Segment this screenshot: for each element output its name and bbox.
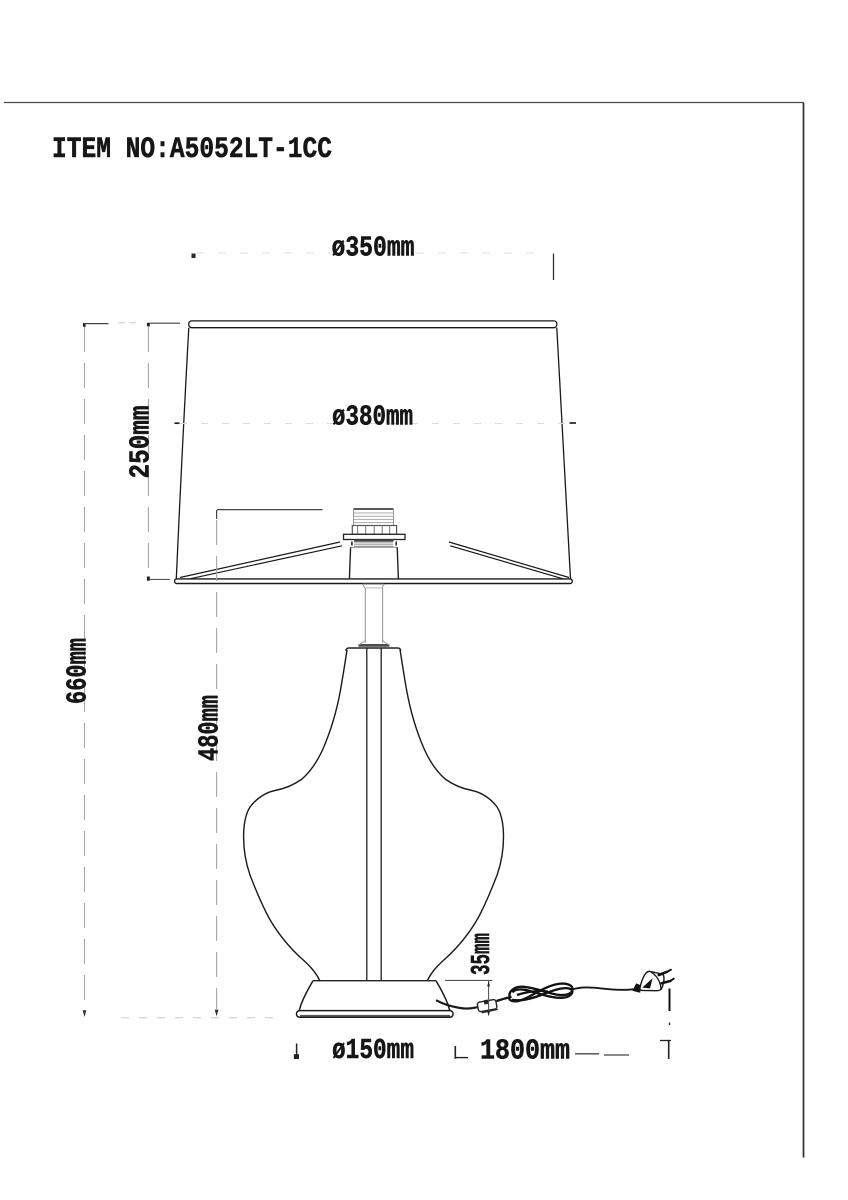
svg-text:660mm: 660mm bbox=[62, 638, 95, 704]
svg-text:ITEM NO:A5052LT-1CC: ITEM NO:A5052LT-1CC bbox=[52, 133, 332, 167]
svg-text:1800mm: 1800mm bbox=[480, 1035, 570, 1068]
svg-text:35mm: 35mm bbox=[468, 933, 498, 975]
svg-text:480mm: 480mm bbox=[194, 695, 227, 761]
svg-text:ø150mm: ø150mm bbox=[332, 1034, 414, 1067]
svg-text:ø350mm: ø350mm bbox=[332, 232, 415, 265]
svg-text:ø380mm: ø380mm bbox=[332, 401, 413, 434]
svg-text:250mm: 250mm bbox=[125, 406, 158, 479]
